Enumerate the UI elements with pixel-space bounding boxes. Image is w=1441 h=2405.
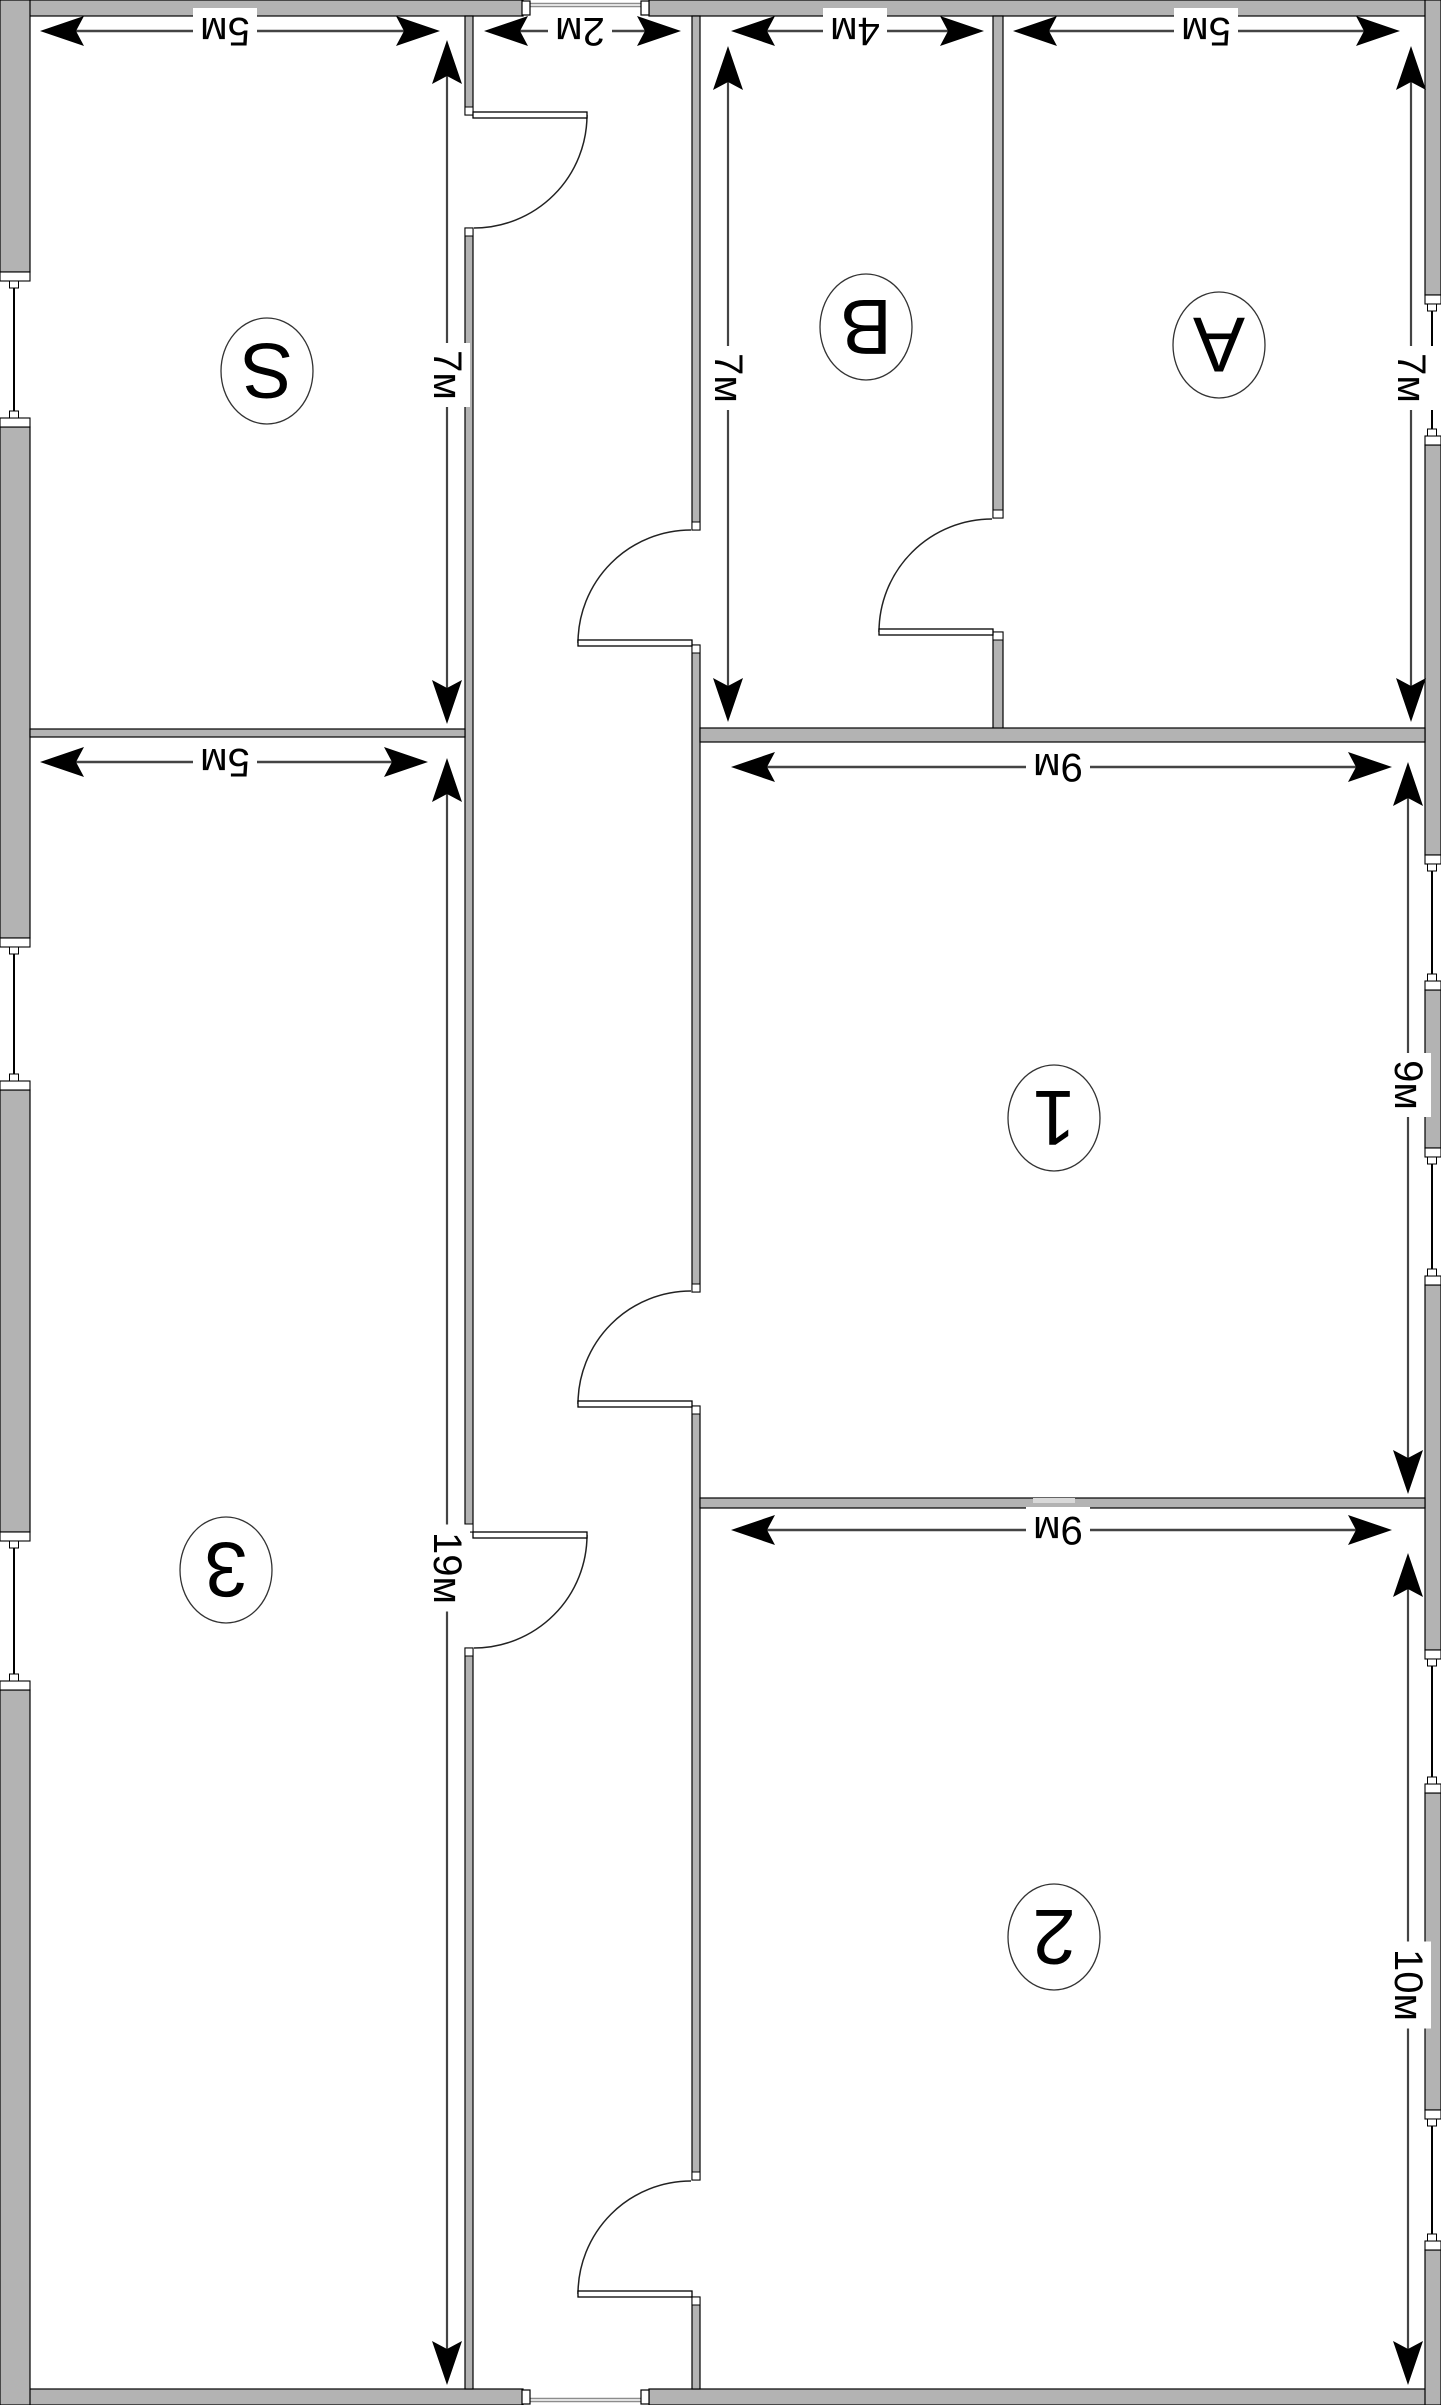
window-1-right-2-sill-tick [1428, 1157, 1437, 1164]
wall-ba-1 [700, 728, 1425, 742]
wall-ext-left-1 [0, 0, 30, 272]
wall-end-cap [692, 522, 700, 530]
window-2-right-2-sill-tick [1428, 2119, 1437, 2126]
room-1-label-text: 1 [1032, 1074, 1075, 1162]
door-room-s-leaf [473, 112, 587, 118]
wall-ext-left-2 [0, 427, 30, 938]
window-3-left-2-sill-tick [10, 1541, 19, 1548]
wall-corridor-right-1 [692, 16, 700, 530]
window-2-right-2-frame-cap [1425, 2110, 1441, 2119]
window-2-right-2-frame-cap [1425, 2241, 1441, 2250]
wall-ext-right-6 [1425, 2250, 1441, 2405]
window-a-right-sill-tick [1428, 429, 1437, 436]
dim-b-width-label: 4м [830, 9, 880, 53]
door-room-2-leaf [578, 2291, 692, 2297]
wall-ext-right-4 [1425, 1285, 1441, 1650]
wall-corridor-left-2 [465, 228, 473, 1532]
dim-3-height-label: 19м [425, 1532, 469, 1604]
floor-plan-drawing: 5м2м4м5м9м9м5м7м7м7м9м10м19мSBA123 [0, 0, 1441, 2405]
door-room-b-leaf [578, 640, 692, 646]
dim-b-height-label: 7м [706, 353, 750, 403]
window-2-right-2-sill-tick [1428, 2234, 1437, 2241]
window-1-right-2-sill-tick [1428, 1269, 1437, 1276]
wall-end-cap [465, 1648, 473, 1656]
window-1-right-2 [1425, 1148, 1441, 1285]
window-a-right-sill-tick [1428, 304, 1437, 311]
dim-s-width-label: 5м [200, 9, 250, 53]
room-2-label-text: 2 [1032, 1893, 1075, 1981]
floor-plan-page: 5м2м4м5м9м9м5м7м7м7м9м10м19мSBA123 [0, 0, 1441, 2405]
wall-ext-right-2 [1425, 445, 1441, 855]
wall-end-cap [692, 645, 700, 653]
wall-end-cap [692, 2297, 700, 2305]
wall-end-cap [993, 510, 1003, 518]
door-b-to-a-leaf [879, 629, 993, 635]
room-a-label-text: A [1193, 301, 1245, 389]
window-1-right-1-sill-tick [1428, 864, 1437, 871]
wall-end-cap [692, 2172, 700, 2180]
window-1-right-1-sill-tick [1428, 974, 1437, 981]
wall-end-cap [465, 228, 473, 236]
dim-a-width-label: 5м [1181, 9, 1231, 53]
wall-b-a-2 [993, 632, 1003, 737]
wall-end-cap [692, 1406, 700, 1414]
wall-corridor-right-2 [692, 645, 700, 1292]
window-s-left-frame-cap [0, 418, 30, 427]
dim-1-width-label: 9м [1033, 745, 1083, 789]
room-3-label-text: 3 [204, 1526, 247, 1614]
window-a-right-frame-cap [1425, 436, 1441, 445]
window-2-right-1-frame-cap [1425, 1650, 1441, 1659]
entry-bottom-frame-tick [522, 2390, 530, 2404]
window-3-left-1-frame-cap [0, 1081, 30, 1090]
dim-2-height-label: 10м [1386, 1949, 1430, 2021]
window-1-right-1-frame-cap [1425, 855, 1441, 864]
window-3-left-1-frame-cap [0, 938, 30, 947]
room-s-label-text: S [241, 327, 293, 415]
window-3-left-1 [0, 938, 30, 1090]
window-1-right-1-frame-cap [1425, 981, 1441, 990]
dim-s-height-label: 7м [425, 350, 469, 400]
wall-end-cap [993, 632, 1003, 640]
window-s-left-sill-tick [10, 411, 19, 418]
window-3-left-1-sill-tick [10, 947, 19, 954]
dim-1-height-label: 9м [1386, 1060, 1430, 1110]
wall-ext-top-left [0, 0, 523, 16]
dim-2-width-label: 9м [1033, 1508, 1083, 1552]
dim-3-width-label: 5м [200, 740, 250, 784]
window-s-left-frame-cap [0, 272, 30, 281]
entry-top-frame-tick [522, 1, 530, 15]
window-s-left [0, 272, 30, 427]
wall-ext-bottom-left [0, 2389, 523, 2405]
window-3-left-2 [0, 1532, 30, 1690]
window-3-left-2-sill-tick [10, 1674, 19, 1681]
dim-a-height-label: 7м [1389, 353, 1433, 403]
wall-1-2-patch [1033, 1498, 1075, 1503]
wall-corridor-left-1 [465, 16, 473, 115]
window-2-right-1-frame-cap [1425, 1784, 1441, 1793]
window-2-right-1-sill-tick [1428, 1777, 1437, 1784]
wall-b-a-1 [993, 16, 1003, 518]
window-s-left-sill-tick [10, 281, 19, 288]
window-2-right-2 [1425, 2110, 1441, 2250]
wall-end-cap [692, 1284, 700, 1292]
wall-ext-top-right [649, 0, 1441, 16]
entry-top-frame-tick [641, 1, 649, 15]
wall-ext-right-1 [1425, 0, 1441, 295]
window-2-right-1 [1425, 1650, 1441, 1793]
dim-entry-label: 2м [555, 9, 605, 53]
window-a-right-frame-cap [1425, 295, 1441, 304]
window-1-right-1 [1425, 855, 1441, 990]
wall-corridor-right-3 [692, 1406, 700, 2180]
wall-corridor-left-3 [465, 1648, 473, 2389]
window-1-right-2-frame-cap [1425, 1276, 1441, 1285]
window-2-right-1-sill-tick [1428, 1659, 1437, 1666]
window-1-right-2-frame-cap [1425, 1148, 1441, 1157]
wall-ext-left-3 [0, 1090, 30, 1532]
wall-corridor-right-4 [692, 2297, 700, 2389]
window-3-left-1-sill-tick [10, 1074, 19, 1081]
room-b-label-text: B [840, 283, 892, 371]
door-room-1-leaf [578, 1401, 692, 1407]
wall-end-cap [465, 107, 473, 115]
wall-ext-bottom-right [649, 2389, 1441, 2405]
wall-ext-left-4 [0, 1690, 30, 2405]
wall-s-3 [30, 729, 465, 737]
door-room-3-leaf [473, 1532, 587, 1538]
window-3-left-2-frame-cap [0, 1532, 30, 1541]
window-3-left-2-frame-cap [0, 1681, 30, 1690]
entry-bottom-frame-tick [641, 2390, 649, 2404]
